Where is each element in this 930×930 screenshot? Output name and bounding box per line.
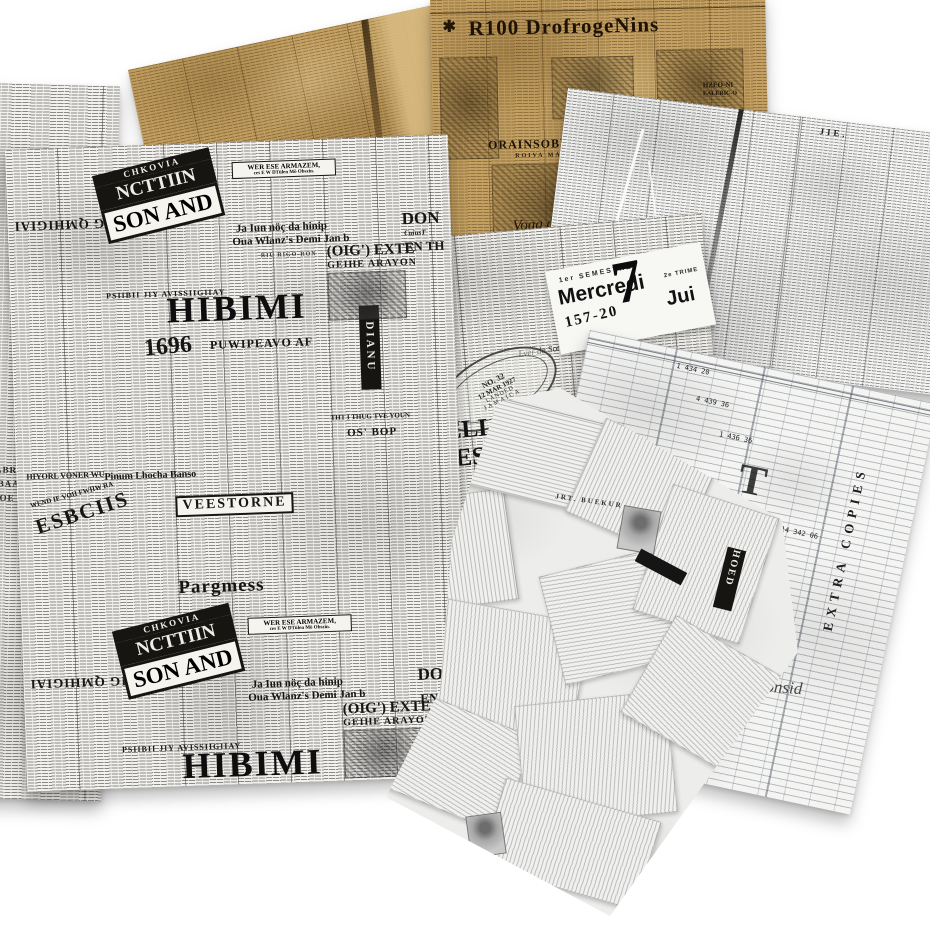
headline-don: DON — [401, 209, 439, 228]
ledger-number: 14 342 06 — [780, 526, 819, 541]
collage-year: 1696 — [143, 332, 193, 361]
sheet-newspaper-collage: MBIG QMHIGIAI CHKOVIA NCTTIIN SON AND WE… — [5, 135, 470, 792]
headline-exte-sub: GEIHE ARAYON — [343, 715, 433, 729]
collage-masthead-sub: PUWIPEAVO AF — [210, 335, 314, 351]
masthead-star-glyph: ✱ — [442, 19, 456, 36]
portrait-photo — [465, 812, 506, 859]
calendar-month: Jui — [665, 284, 697, 310]
column-header: JIE. — [819, 127, 848, 140]
collage-masthead: HIBIMI — [182, 743, 323, 786]
ledger-vertical-label: EXTRA COPIES — [821, 449, 873, 633]
headline-pargmess: Pargmess — [178, 575, 265, 598]
map-diagram-image — [327, 270, 407, 321]
calendar-trimester: 2e TRIME — [663, 267, 699, 280]
headline-black-box-stack: CHKOVIA NCTTIIN SON AND — [112, 603, 245, 700]
ledger-number: 1 436 36 — [718, 431, 753, 445]
ledger-number: 4 439 36 — [695, 396, 730, 410]
right-fragment: EALERIC-O — [703, 91, 737, 98]
armazem-notice-box: WER ESE ARMAZEM, ces E W DTülen Mö Obszi… — [232, 158, 337, 179]
headline-don-sub: CuiusT — [404, 229, 426, 237]
portrait-photo — [616, 505, 661, 555]
left-edge-fragment-3: 3OOE — [0, 493, 15, 503]
headline-hiyorl: HIYORL VONER WU — [26, 471, 104, 482]
headline-black-box-stack: CHKOVIA NCTTIIN SON AND — [92, 147, 225, 244]
headline-pinum: Pinum Lhocha Banso — [104, 470, 196, 484]
calendar-week-numbers: 157-20 — [564, 304, 621, 332]
ad-small-center: RIU RIGO-RON — [261, 251, 317, 259]
headline-veestorne: VEESTORNE — [175, 492, 294, 517]
headline-exte-sub: GEIHE ARAYON — [327, 257, 417, 271]
product-photo-canvas: 1 ABRR O BAAB 3OOE ✱ R100 DrofrogeNins O… — [0, 0, 930, 930]
exte-article: (OIG') EXTE GEIHE ARAYON — [327, 242, 419, 321]
headline-os-bop: OS' BOP — [347, 426, 397, 439]
sepia-masthead: R100 DrofrogeNins — [468, 13, 659, 39]
small-bold-line: THT I THUG TVE YOUN — [330, 412, 410, 422]
armazem-notice-box: WER ESE ARMAZEM, ces E W DTülen Mö Obszi… — [247, 614, 352, 635]
collage-masthead: HIBIMI — [166, 288, 307, 331]
right-fragment: HZEO-NI — [703, 82, 733, 90]
